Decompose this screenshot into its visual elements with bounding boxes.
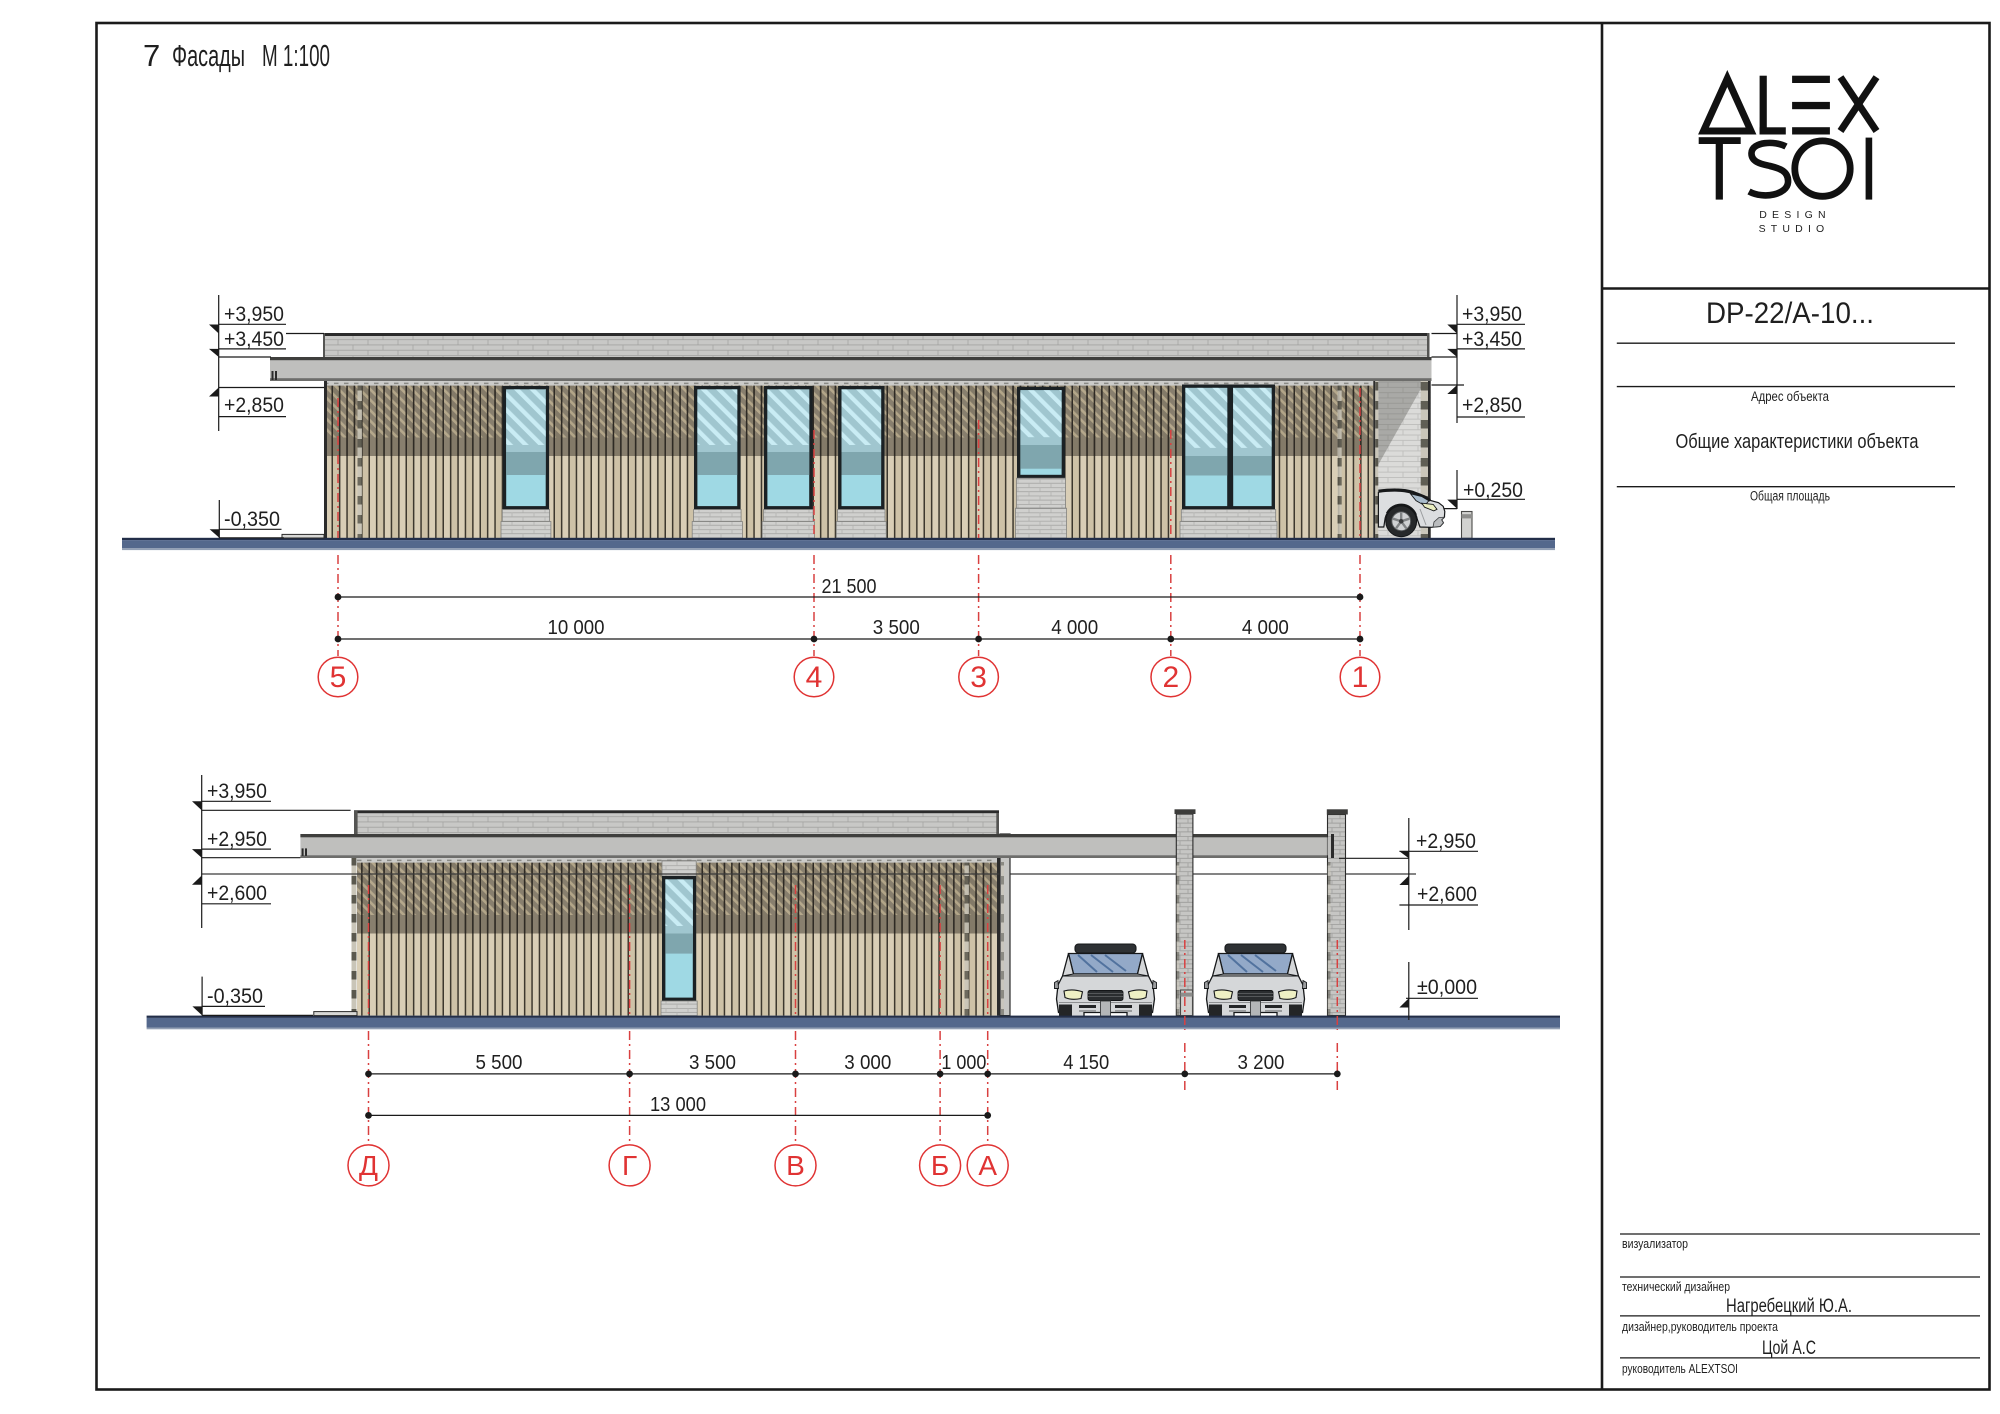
svg-text:Фасады: Фасады — [172, 38, 245, 73]
svg-text:руководитель ALEXTSOI: руководитель ALEXTSOI — [1622, 1362, 1738, 1376]
svg-text:21 500: 21 500 — [822, 576, 877, 598]
svg-text:+3,950: +3,950 — [224, 303, 284, 326]
svg-text:DESIGN: DESIGN — [1759, 209, 1830, 221]
svg-text:+0,250: +0,250 — [1463, 479, 1523, 502]
svg-text:Б: Б — [931, 1150, 949, 1181]
svg-text:±0,000: ±0,000 — [1417, 976, 1477, 999]
svg-text:-0,350: -0,350 — [207, 985, 263, 1008]
svg-text:+3,950: +3,950 — [207, 780, 267, 803]
svg-text:13 000: 13 000 — [650, 1094, 706, 1116]
svg-text:+3,450: +3,450 — [1462, 328, 1522, 351]
svg-text:+3,450: +3,450 — [224, 328, 284, 351]
svg-text:1: 1 — [1352, 661, 1369, 694]
svg-text:Адрес объекта: Адрес объекта — [1751, 389, 1829, 404]
svg-text:+2,600: +2,600 — [207, 882, 267, 905]
svg-text:3 000: 3 000 — [844, 1052, 891, 1074]
svg-text:Цой А.С: Цой А.С — [1762, 1338, 1816, 1359]
svg-text:+2,850: +2,850 — [1462, 394, 1522, 417]
svg-text:визуализатор: визуализатор — [1622, 1237, 1688, 1251]
svg-text:2: 2 — [1162, 661, 1179, 694]
svg-text:+2,850: +2,850 — [224, 394, 284, 417]
svg-text:4 150: 4 150 — [1063, 1052, 1109, 1074]
svg-text:7: 7 — [143, 38, 160, 73]
svg-text:Д: Д — [359, 1150, 378, 1181]
svg-text:STUDIO: STUDIO — [1759, 223, 1830, 235]
svg-text:+3,950: +3,950 — [1462, 303, 1522, 326]
svg-text:3 500: 3 500 — [873, 617, 920, 639]
svg-text:3: 3 — [970, 661, 987, 694]
svg-text:4 000: 4 000 — [1242, 617, 1289, 639]
svg-text:3 200: 3 200 — [1238, 1052, 1285, 1074]
svg-text:Общие характеристики объекта: Общие характеристики объекта — [1676, 430, 1919, 453]
svg-text:1 000: 1 000 — [941, 1052, 986, 1074]
svg-text:5: 5 — [330, 661, 347, 694]
svg-text:дизайнер,руководитель проекта: дизайнер,руководитель проекта — [1622, 1320, 1778, 1334]
svg-text:4 000: 4 000 — [1051, 617, 1098, 639]
svg-text:DP-22/A-10...: DP-22/A-10... — [1706, 297, 1874, 330]
svg-text:+2,600: +2,600 — [1417, 883, 1477, 906]
svg-text:3 500: 3 500 — [689, 1052, 736, 1074]
svg-text:М 1:100: М 1:100 — [262, 38, 330, 73]
svg-text:4: 4 — [806, 661, 823, 694]
svg-text:технический дизайнер: технический дизайнер — [1622, 1280, 1730, 1294]
svg-text:+2,950: +2,950 — [207, 828, 267, 851]
svg-text:-0,350: -0,350 — [224, 508, 280, 531]
svg-text:В: В — [786, 1150, 805, 1181]
svg-text:Нагребецкий Ю.А.: Нагребецкий Ю.А. — [1726, 1296, 1852, 1317]
svg-text:10 000: 10 000 — [548, 617, 605, 639]
svg-text:А: А — [978, 1150, 997, 1181]
svg-text:Общая площадь: Общая площадь — [1750, 489, 1830, 504]
svg-text:+2,950: +2,950 — [1416, 830, 1476, 853]
svg-text:Г: Г — [622, 1150, 637, 1181]
svg-text:5 500: 5 500 — [476, 1052, 523, 1074]
